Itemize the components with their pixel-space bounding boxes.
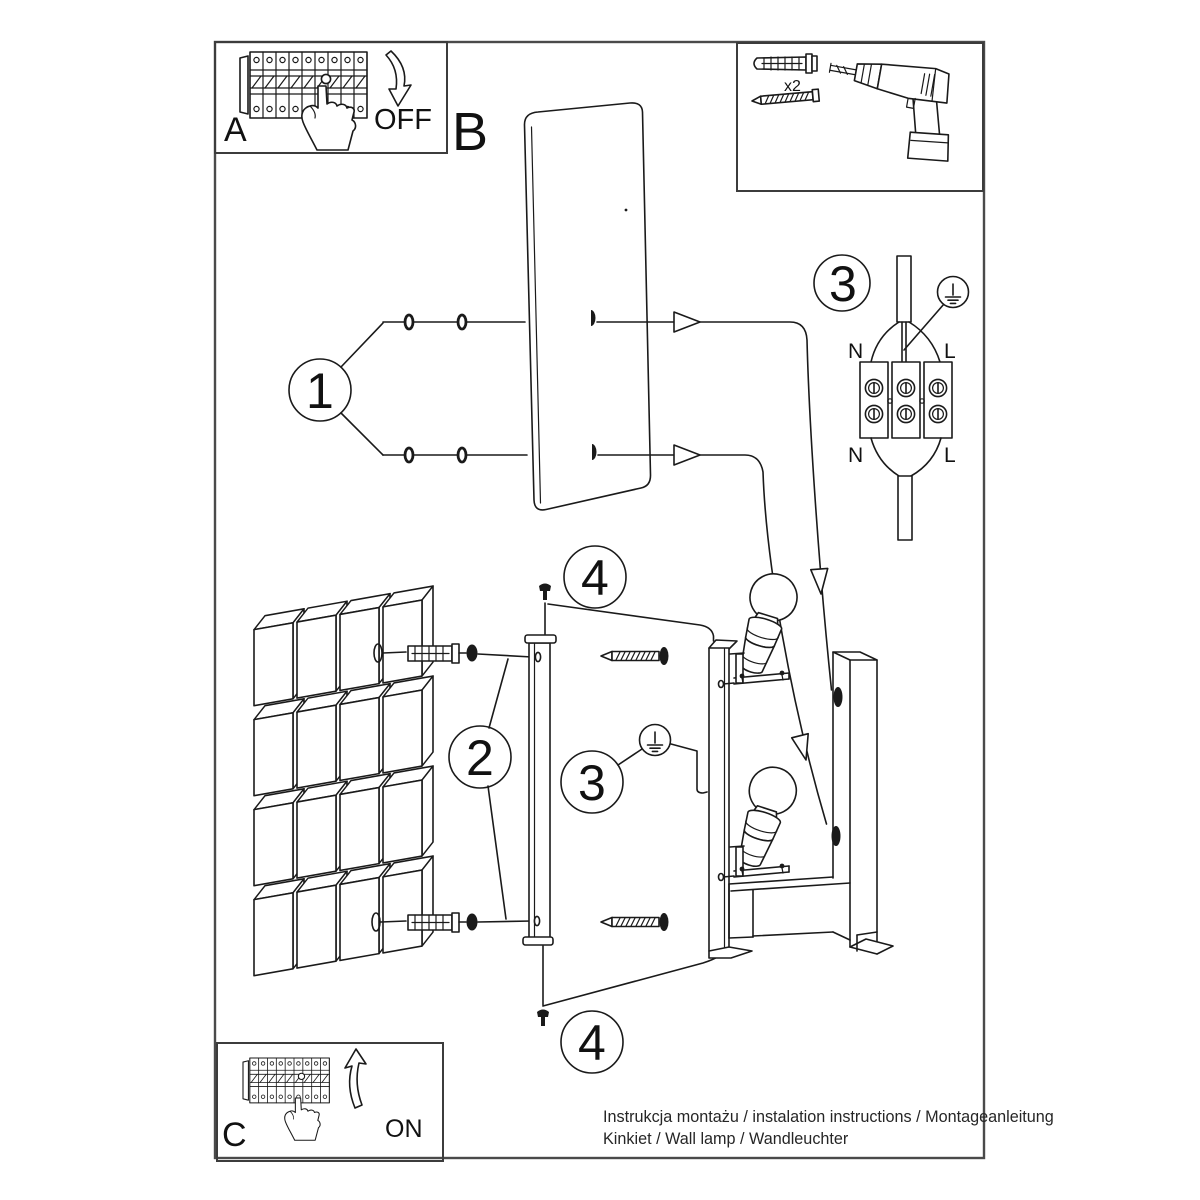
- on-label: ON: [385, 1115, 423, 1143]
- step-c-power-on: C ON: [217, 1043, 443, 1161]
- step-a-label: A: [224, 111, 247, 149]
- arrow-up-icon: [345, 1049, 366, 1108]
- wall-plug-icon: [754, 54, 817, 73]
- instruction-sheet: A OFF x2: [0, 0, 1200, 1200]
- arrow-right-icon: [674, 445, 700, 465]
- tools-box: x2: [737, 43, 983, 191]
- callout-4-top: 4: [539, 546, 714, 641]
- callout-4-number: 4: [578, 1015, 606, 1071]
- washer-icon: [458, 448, 466, 462]
- lamp-housing: [709, 568, 803, 958]
- cover-label: B: [452, 102, 488, 162]
- diagram-canvas: A OFF x2: [0, 0, 1200, 1200]
- callout-4-bottom: 4: [537, 946, 726, 1073]
- mounting-screw-icon: [601, 647, 669, 665]
- footer-line-1: Instrukcja montażu / instalation instruc…: [603, 1108, 1054, 1126]
- cable-bottom: [898, 476, 912, 540]
- arrow-right-icon: [674, 312, 700, 332]
- label-l-bottom: L: [944, 444, 956, 467]
- callout-2-number: 2: [466, 730, 494, 786]
- callout-1-number: 1: [306, 363, 334, 419]
- mounting-rail: [523, 635, 556, 945]
- mounting-screw-icon: [601, 913, 669, 931]
- callout-2-mounting: 2: [449, 659, 511, 919]
- cover-screw-icon: [539, 584, 551, 601]
- step-a-power-off: A OFF: [215, 42, 447, 153]
- callout-4-number: 4: [581, 550, 609, 606]
- wall-tiles: [254, 586, 433, 976]
- cover-panel: B: [452, 102, 651, 510]
- washer-icon: [405, 315, 413, 329]
- pointing-hand-icon: [285, 1098, 320, 1140]
- label-n-bottom: N: [848, 444, 863, 467]
- callout-3-ground: 3: [561, 725, 707, 814]
- wiring-detail: 3 N L N L: [814, 255, 969, 540]
- terminal-block: [860, 362, 952, 438]
- callout-3-number: 3: [578, 755, 606, 811]
- breaker-panel-icon: [243, 1058, 329, 1103]
- arrow-down-icon: [386, 51, 411, 106]
- channel-hole: [832, 826, 841, 846]
- drill-icon: [817, 51, 963, 166]
- arrow-down-icon: [792, 734, 815, 762]
- washer-icon: [458, 315, 466, 329]
- channel-hole: [834, 687, 843, 707]
- label-l-top: L: [944, 340, 956, 363]
- cable-top: [897, 256, 911, 322]
- ground-symbol-icon: [640, 725, 671, 756]
- footer-line-2: Kinkiet / Wall lamp / Wandleuchter: [603, 1130, 849, 1148]
- step-c-label: C: [222, 1116, 247, 1154]
- label-n-top: N: [848, 340, 863, 363]
- arrow-down-icon: [811, 568, 830, 594]
- cover-screw-icon: [537, 1010, 549, 1027]
- ground-symbol-icon: [938, 277, 969, 308]
- off-label: OFF: [374, 104, 432, 136]
- washer-icon: [405, 448, 413, 462]
- wiring-callout-number: 3: [829, 256, 857, 312]
